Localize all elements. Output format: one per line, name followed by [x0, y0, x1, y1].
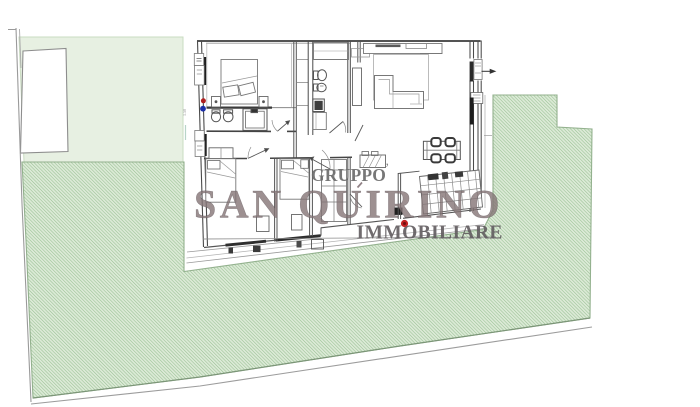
svg-text:IMMOBILIARE: IMMOBILIARE: [357, 223, 503, 244]
svg-text:’: ’: [385, 160, 389, 175]
svg-text:1.50: 1.50: [182, 109, 187, 116]
svg-text:SAN QUIRINO: SAN QUIRINO: [194, 182, 503, 227]
